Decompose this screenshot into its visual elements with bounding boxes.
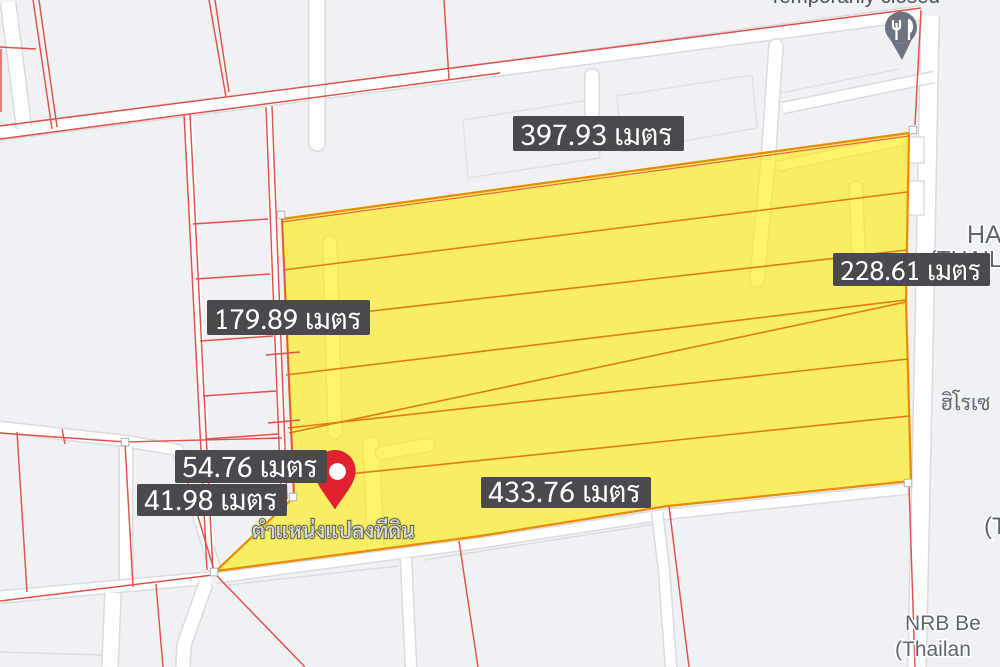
svg-text:(Thailan: (Thailan xyxy=(895,638,971,661)
svg-text:HAN: HAN xyxy=(967,221,1000,249)
svg-text:NRB Be: NRB Be xyxy=(905,612,981,635)
svg-text:Temporarily closed: Temporarily closed xyxy=(769,0,940,8)
svg-text:(T: (T xyxy=(984,513,1000,540)
